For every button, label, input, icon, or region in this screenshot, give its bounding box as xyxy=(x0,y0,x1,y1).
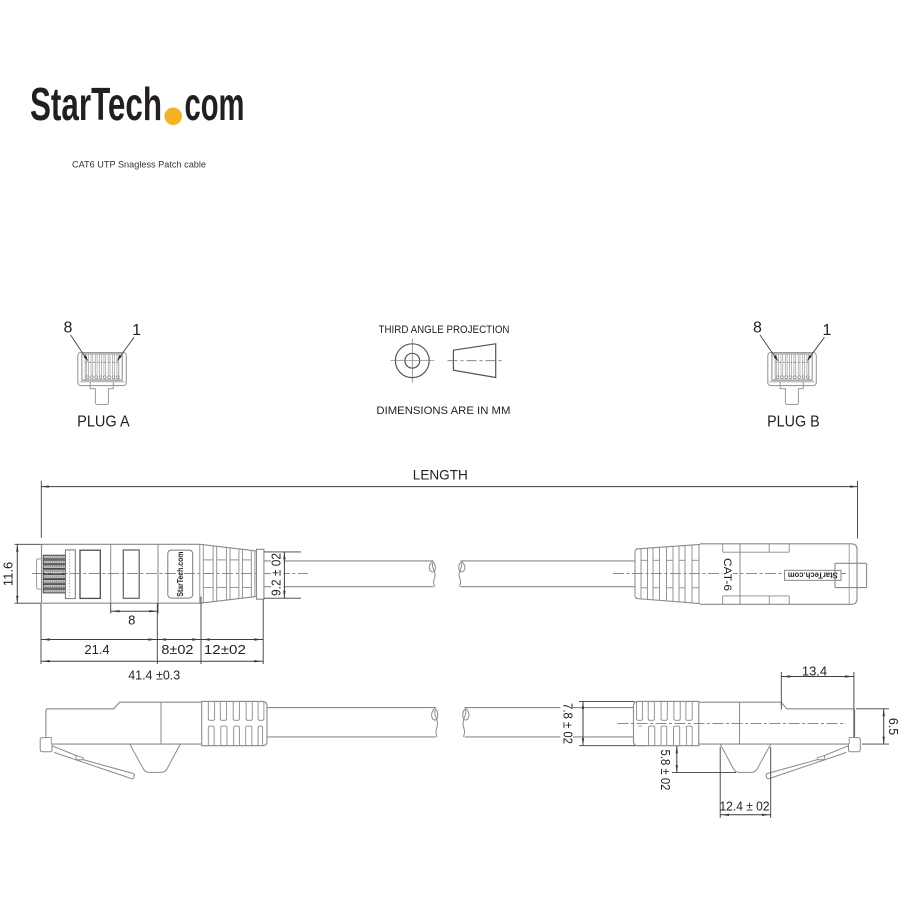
svg-text:PLUG B: PLUG B xyxy=(767,414,820,431)
svg-text:41.4 ±0.3: 41.4 ±0.3 xyxy=(128,668,180,683)
svg-text:12±02: 12±02 xyxy=(204,642,246,657)
svg-text:StarTech.com: StarTech.com xyxy=(175,551,185,596)
svg-text:12.4 ± 02: 12.4 ± 02 xyxy=(720,799,770,814)
svg-text:21.4: 21.4 xyxy=(84,642,109,657)
svg-text:11.6: 11.6 xyxy=(0,562,15,586)
svg-text:13.4: 13.4 xyxy=(802,663,827,678)
svg-text:6.5: 6.5 xyxy=(886,718,900,735)
svg-text:DIMENSIONS ARE IN MM: DIMENSIONS ARE IN MM xyxy=(376,405,510,417)
svg-text:1: 1 xyxy=(822,322,831,339)
svg-text:1: 1 xyxy=(132,322,141,339)
svg-text:8: 8 xyxy=(128,613,135,628)
svg-text:StarTech.com: StarTech.com xyxy=(788,571,838,580)
svg-text:THIRD ANGLE PROJECTION: THIRD ANGLE PROJECTION xyxy=(379,324,510,336)
svg-text:7.8 ± 02: 7.8 ± 02 xyxy=(561,703,575,744)
svg-text:5.8 ± 02: 5.8 ± 02 xyxy=(658,750,672,791)
svg-text:LENGTH: LENGTH xyxy=(413,466,468,482)
svg-text:8: 8 xyxy=(64,319,73,336)
svg-text:8: 8 xyxy=(753,319,762,336)
svg-text:PLUG A: PLUG A xyxy=(77,414,130,431)
svg-text:CAT6 UTP Snagless Patch cable: CAT6 UTP Snagless Patch cable xyxy=(72,160,206,170)
svg-text:CAT-6: CAT-6 xyxy=(721,558,733,591)
svg-text:9.2 ± 02: 9.2 ± 02 xyxy=(270,553,284,596)
svg-text:8±02: 8±02 xyxy=(161,642,193,657)
svg-text:StarTech: StarTech xyxy=(30,78,162,130)
svg-text:com: com xyxy=(185,78,245,130)
